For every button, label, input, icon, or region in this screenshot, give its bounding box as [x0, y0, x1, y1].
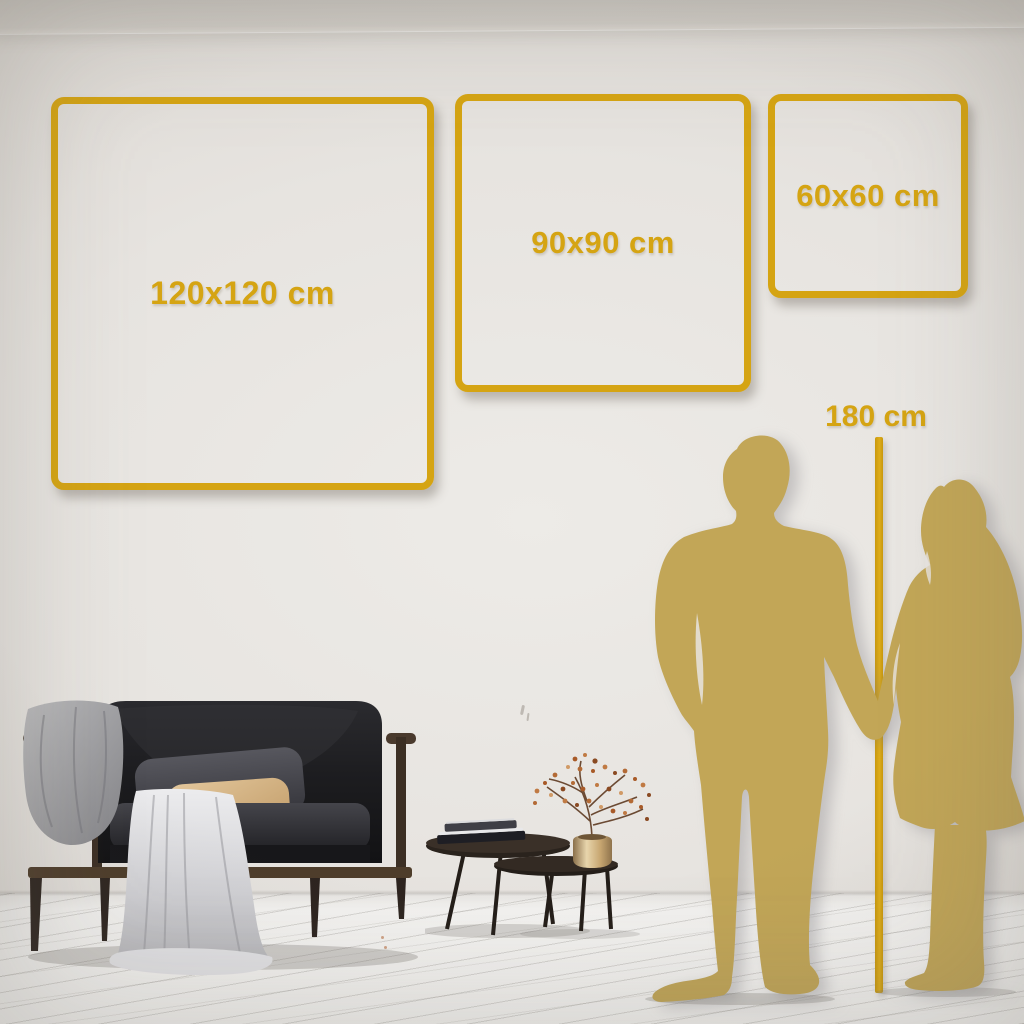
sofa-illustration [18, 695, 423, 985]
woman-legs-silhouette [905, 825, 987, 991]
man-silhouette [652, 435, 886, 1002]
sofa-leg [100, 878, 110, 941]
book-stack [436, 818, 525, 845]
size-frame-label: 120x120 cm [150, 275, 335, 312]
wood-post [396, 737, 406, 877]
size-guide-scene: 120x120 cm 90x90 cm 60x60 cm 180 cm [0, 0, 1024, 1024]
coffee-table-illustration [425, 745, 660, 945]
vase-rim [578, 834, 606, 840]
sofa-leg [396, 878, 406, 919]
sofa-leg [310, 878, 320, 937]
sofa-leg [30, 878, 42, 951]
size-frame-60: 60x60 cm [768, 94, 968, 298]
gray-blanket [23, 701, 123, 846]
size-frame-label: 60x60 cm [796, 178, 940, 214]
size-frame-120: 120x120 cm [51, 97, 434, 490]
size-frame-label: 90x90 cm [531, 225, 675, 261]
size-frame-90: 90x90 cm [455, 94, 751, 392]
couple-silhouettes [628, 425, 1024, 1005]
